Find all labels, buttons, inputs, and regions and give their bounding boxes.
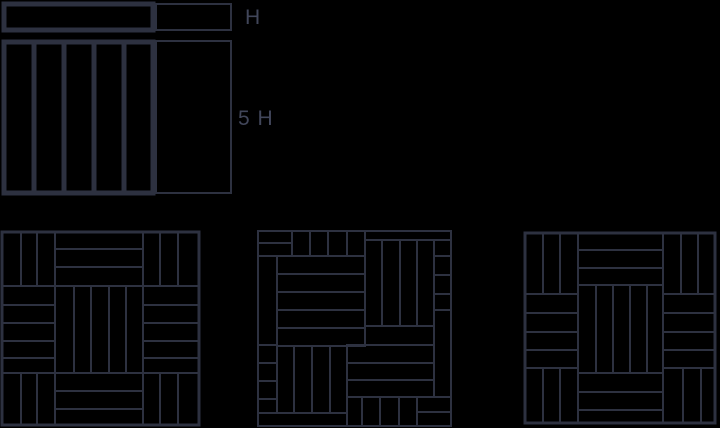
label-h: H	[245, 6, 261, 29]
block-h3	[55, 373, 143, 425]
edge-long-plank	[258, 256, 277, 345]
block-v3	[525, 368, 578, 423]
block-v3	[143, 232, 199, 286]
planks-outline	[4, 42, 153, 193]
height-5h-bracket	[156, 41, 231, 193]
height-h-bracket	[156, 4, 231, 30]
block-h3	[578, 233, 663, 285]
parquet-diagram: H 5 H	[0, 0, 720, 428]
block-h4-strip	[365, 326, 434, 345]
edge-pieces-column	[258, 345, 277, 413]
pattern-border	[2, 232, 199, 425]
edge-long-plank	[434, 310, 451, 397]
diagram-canvas: H 5 H	[0, 0, 720, 428]
edge-thin-strip	[365, 231, 451, 240]
block-h5	[277, 256, 365, 346]
edge-thin-strip	[258, 413, 347, 426]
block-v3	[525, 233, 578, 294]
block-v5	[55, 286, 143, 373]
block-h3	[55, 232, 143, 286]
block-h3	[578, 373, 663, 423]
block-h5	[2, 286, 55, 373]
block-v3	[663, 368, 715, 423]
horizontal-plank	[4, 4, 153, 30]
block-v3	[143, 373, 199, 425]
block-v3	[663, 233, 715, 294]
plank-size-figure: H 5 H	[4, 4, 274, 193]
pattern-option-pinwheel	[258, 231, 451, 426]
pattern-option-basketweave	[2, 232, 199, 425]
block-v5	[578, 285, 663, 373]
edge-block-v4	[347, 397, 417, 426]
pattern-border	[525, 233, 715, 423]
block-v3	[2, 373, 55, 425]
block-h5	[143, 286, 199, 373]
pattern-option-offset-basketweave	[525, 233, 715, 423]
label-5h: 5 H	[238, 107, 274, 130]
vertical-planks-square	[4, 42, 153, 193]
block-v3	[2, 232, 55, 286]
block-h4	[347, 345, 434, 397]
